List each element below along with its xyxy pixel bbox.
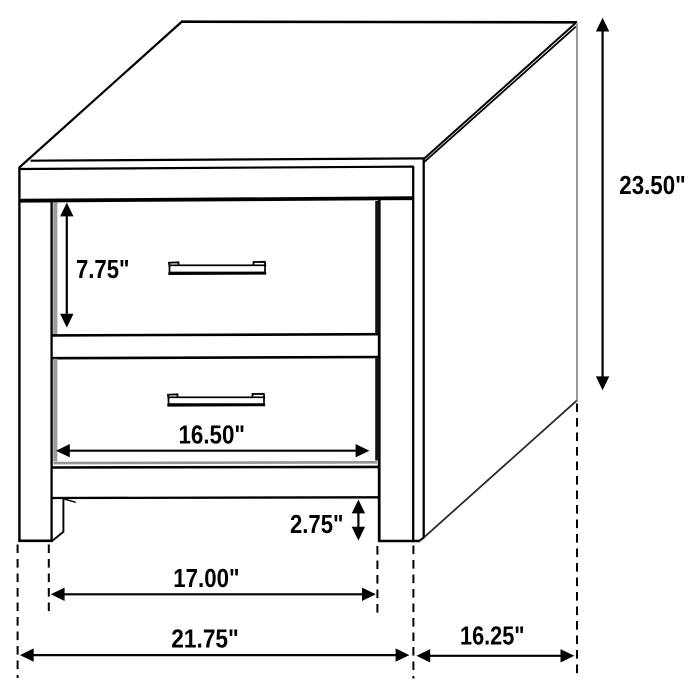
svg-text:7.75": 7.75": [76, 256, 130, 284]
svg-text:23.50": 23.50": [619, 172, 685, 200]
svg-text:21.75": 21.75": [171, 625, 239, 653]
svg-text:16.50": 16.50": [179, 422, 246, 450]
svg-text:16.25": 16.25": [460, 623, 525, 651]
svg-text:2.75": 2.75": [290, 511, 344, 539]
svg-text:17.00": 17.00": [173, 565, 239, 593]
